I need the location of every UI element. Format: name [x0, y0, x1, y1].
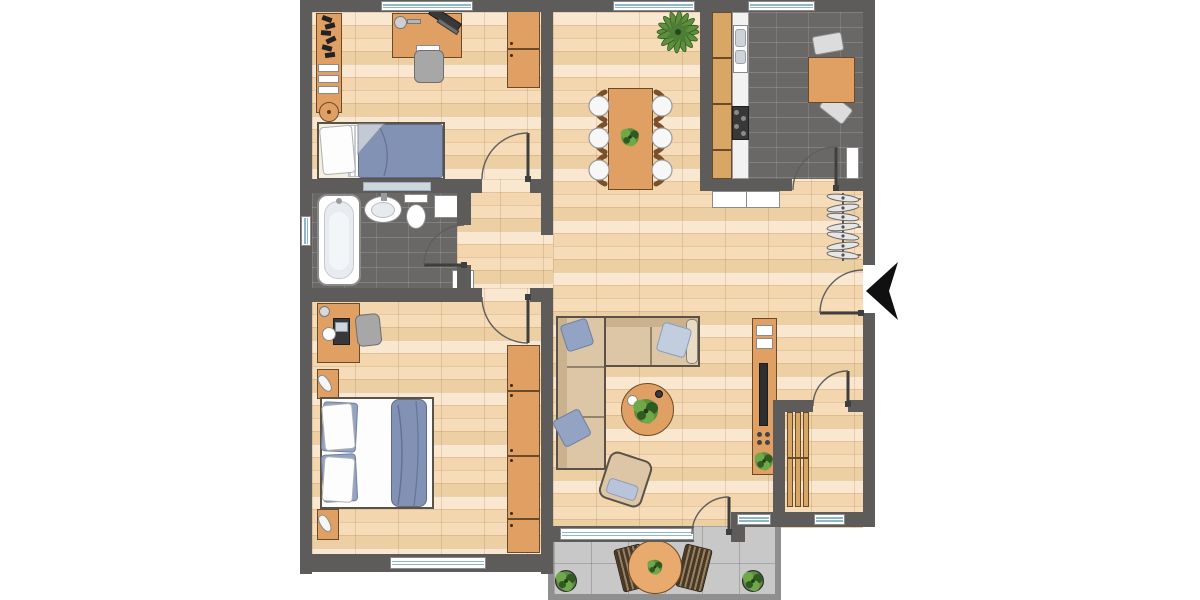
- bookshelf: [316, 13, 342, 113]
- wardrobe-divider: [508, 390, 539, 392]
- sink-basin: [735, 29, 746, 47]
- burner: [734, 124, 739, 129]
- wardrobe-divider: [508, 518, 539, 520]
- wardrobe-handle: [510, 459, 513, 462]
- shelf-board: [318, 86, 339, 94]
- double-bed-throw: [391, 399, 427, 507]
- window-dining: [613, 1, 695, 11]
- bedroom-desk-lamp: [319, 306, 330, 317]
- kitchen-tall-cabinet: [846, 147, 859, 179]
- laptop-screen: [335, 322, 348, 332]
- coffee-table: [621, 383, 674, 436]
- single-bed-pillow: [319, 125, 356, 176]
- shelf-board: [318, 75, 339, 83]
- wall-divider-vertical-upper: [541, 0, 553, 235]
- wall-bathroom-right-upper: [457, 179, 471, 225]
- wall-office-bottom-jamb: [530, 179, 553, 193]
- wall-bedroom-top-jamb: [530, 288, 553, 302]
- coffee-bowl: [655, 390, 663, 398]
- wardrobe-handle: [510, 42, 513, 45]
- floor-plan: [0, 0, 1200, 600]
- entrance-arrow: [866, 262, 898, 320]
- wall-storage-left: [773, 400, 785, 512]
- wall-kitchen-left: [700, 0, 712, 191]
- wardrobe-handle: [510, 54, 513, 57]
- terrace-edge-right: [775, 526, 781, 600]
- window-hall: [737, 514, 771, 525]
- bathroom-mirror: [363, 182, 431, 191]
- wall-exterior-left: [300, 0, 312, 574]
- wardrobe-handle: [510, 524, 513, 527]
- toilet-bowl: [406, 204, 426, 229]
- bedroom-desk-chair: [354, 313, 382, 347]
- wall-kitchen-bottom-left: [700, 179, 792, 191]
- bed-pillow: [321, 403, 356, 452]
- desk-chair: [414, 50, 444, 83]
- sofa-seam: [567, 366, 604, 368]
- hall-sideboard-divider: [746, 192, 747, 207]
- wardrobe-divider: [508, 455, 539, 457]
- bed-pillow: [321, 456, 355, 503]
- window-storage: [814, 514, 845, 525]
- dining-table: [608, 88, 653, 190]
- wardrobe-handle: [510, 449, 513, 452]
- storage-shelf-slat: [803, 412, 809, 507]
- hall-sideboard: [712, 191, 780, 208]
- desk-lamp-arm: [407, 19, 421, 24]
- wall-storage-top-right: [848, 400, 875, 412]
- plant-pot: [555, 570, 577, 592]
- wall-divider-vertical-lower: [541, 290, 553, 574]
- stool-center: [327, 110, 331, 114]
- wall-exterior-right-upper: [863, 0, 875, 265]
- wall-bedroom-top: [300, 288, 482, 302]
- speaker-dot: [765, 440, 770, 445]
- burner: [741, 116, 746, 121]
- single-bed-blanket: [358, 124, 443, 178]
- storage-shelf-slat: [787, 412, 793, 507]
- desk-lamp: [394, 16, 407, 29]
- window-bathroom: [301, 216, 311, 246]
- burner: [734, 110, 739, 115]
- burner: [741, 131, 746, 136]
- wall-storage-top-left: [773, 400, 813, 412]
- window-bedroom: [390, 557, 486, 569]
- coffee-cup: [627, 395, 638, 406]
- wardrobe-divider: [508, 48, 539, 50]
- shelf-board: [318, 64, 339, 72]
- storage-shelf-divider: [787, 457, 809, 459]
- window-living-large: [560, 528, 694, 540]
- sideboard-box: [756, 325, 773, 336]
- speaker-dot: [757, 440, 762, 445]
- desk-plate: [322, 327, 336, 341]
- window-kitchen: [748, 1, 815, 11]
- speaker-dot: [757, 432, 762, 437]
- plant-pot: [742, 570, 764, 592]
- sideboard-box: [756, 338, 773, 349]
- wardrobe-handle: [510, 394, 513, 397]
- terrace-table: [628, 540, 682, 594]
- wall-exterior-right-lower: [863, 313, 875, 512]
- bathtub-highlight: [329, 212, 349, 270]
- washbasin-bowl: [371, 202, 395, 218]
- speaker-dot: [765, 432, 770, 437]
- window-office: [381, 1, 473, 11]
- kitchen-table: [808, 57, 855, 103]
- kitchen-cabinets: [712, 12, 732, 179]
- terrace-edge-bottom: [548, 594, 781, 600]
- tv: [759, 363, 768, 426]
- tub-faucet: [336, 198, 342, 204]
- sink-basin: [735, 50, 746, 64]
- basin-faucet: [381, 193, 387, 201]
- storage-shelf-slat: [795, 412, 801, 507]
- toilet-tank: [404, 194, 428, 203]
- wall-bathroom-right-lower: [457, 265, 471, 302]
- wardrobe-handle: [510, 384, 513, 387]
- wall-kitchen-bottom-right: [836, 179, 875, 191]
- sofa-seam: [650, 327, 652, 365]
- wardrobe-handle: [510, 512, 513, 515]
